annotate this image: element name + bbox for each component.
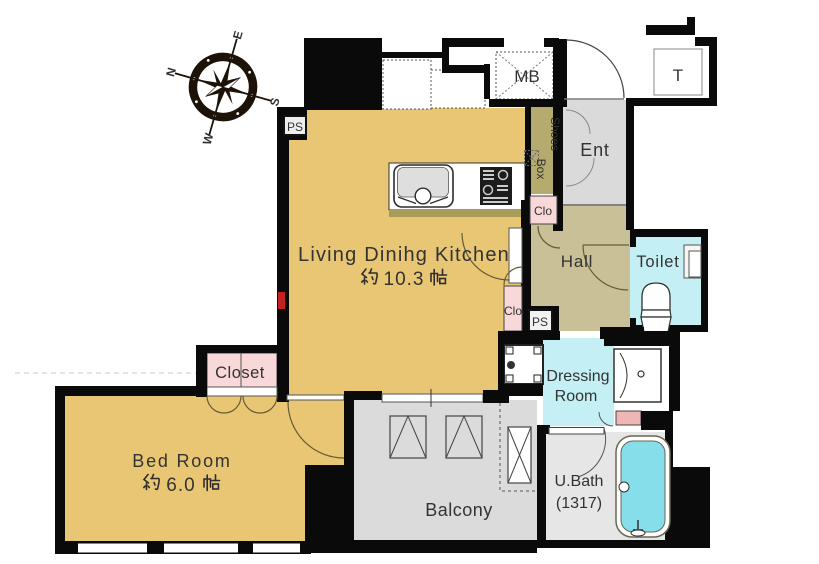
svg-text:Bed Room: Bed Room xyxy=(132,451,231,471)
svg-text:Living Dinihg Kitchen: Living Dinihg Kitchen xyxy=(298,244,510,266)
svg-text:Hall: Hall xyxy=(561,252,594,271)
svg-text:10.3: 10.3 xyxy=(384,269,425,290)
svg-text:PS: PS xyxy=(287,120,303,134)
svg-text:U.Bath: U.Bath xyxy=(555,473,604,490)
svg-text:Clo: Clo xyxy=(504,304,522,318)
svg-text:Room: Room xyxy=(555,388,598,405)
svg-text:Toilet: Toilet xyxy=(636,253,679,271)
svg-text:PS: PS xyxy=(532,315,548,329)
svg-text:T: T xyxy=(673,66,683,85)
svg-text:Ent: Ent xyxy=(580,140,609,160)
svg-text:Box: Box xyxy=(534,159,548,180)
svg-text:(1317): (1317) xyxy=(556,495,602,512)
svg-text:Closet: Closet xyxy=(215,364,265,382)
svg-text:6.0: 6.0 xyxy=(166,475,195,496)
svg-text:Clo: Clo xyxy=(534,204,552,218)
svg-text:MB: MB xyxy=(514,67,540,86)
svg-text:Dressing: Dressing xyxy=(546,368,609,385)
svg-text:Balcony: Balcony xyxy=(425,500,493,520)
svg-text:Shoes: Shoes xyxy=(548,117,562,151)
